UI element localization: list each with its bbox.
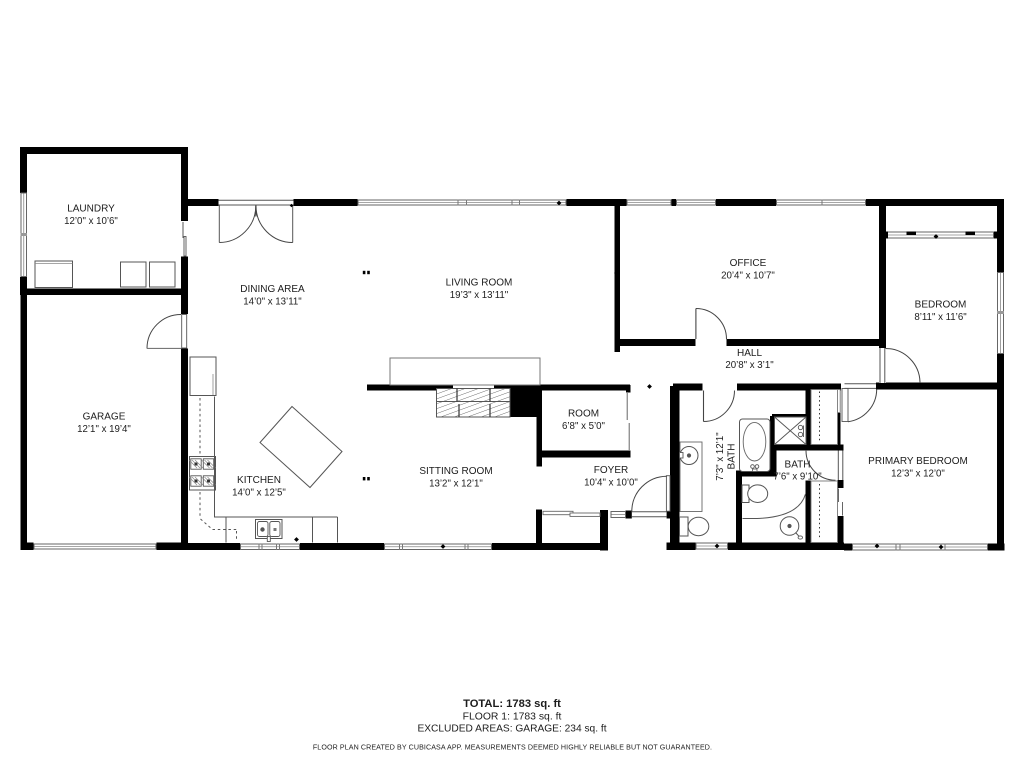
svg-text:7’6" x 9’10": 7’6" x 9’10"	[773, 472, 822, 483]
svg-text:GARAGE: GARAGE	[83, 412, 126, 423]
svg-text:14’0" x 13’11": 14’0" x 13’11"	[243, 297, 302, 308]
svg-text:8’11" x 11’6": 8’11" x 11’6"	[914, 312, 967, 323]
svg-text:OFFICE: OFFICE	[730, 258, 767, 269]
svg-text:BATH: BATH	[727, 444, 738, 470]
svg-text:KITCHEN: KITCHEN	[237, 475, 281, 486]
svg-text:13’2" x 12’1": 13’2" x 12’1"	[429, 479, 483, 490]
svg-text:LAUNDRY: LAUNDRY	[67, 204, 115, 215]
svg-text:20’8" x 3’1": 20’8" x 3’1"	[725, 360, 774, 371]
svg-text:12’0" x 10’6": 12’0" x 10’6"	[64, 216, 118, 227]
svg-text:LIVING ROOM: LIVING ROOM	[446, 278, 513, 289]
svg-text:10’4" x 10’0": 10’4" x 10’0"	[584, 478, 638, 489]
svg-text:FOYER: FOYER	[594, 465, 628, 476]
svg-text:12’1" x 19’4": 12’1" x 19’4"	[77, 424, 131, 435]
svg-text:FLOOR 1: 1783 sq. ft: FLOOR 1: 1783 sq. ft	[463, 712, 562, 723]
svg-text:14’0" x 12’5": 14’0" x 12’5"	[232, 488, 286, 499]
svg-text:TOTAL: 1783 sq. ft: TOTAL: 1783 sq. ft	[463, 698, 561, 710]
svg-text:BATH: BATH	[785, 460, 811, 471]
svg-text:7’3" x 12’1": 7’3" x 12’1"	[715, 432, 726, 481]
svg-text:12’3" x 12’0": 12’3" x 12’0"	[891, 469, 945, 480]
svg-text:20’4" x 10’7": 20’4" x 10’7"	[721, 271, 775, 282]
svg-text:6’8" x 5’0": 6’8" x 5’0"	[562, 421, 606, 432]
svg-text:EXCLUDED AREAS: GARAGE: 234 sq: EXCLUDED AREAS: GARAGE: 234 sq. ft	[417, 724, 606, 735]
svg-text:SITTING ROOM: SITTING ROOM	[419, 466, 492, 477]
svg-text:PRIMARY BEDROOM: PRIMARY BEDROOM	[868, 456, 968, 467]
svg-text:ROOM: ROOM	[568, 409, 599, 420]
svg-text:FLOOR PLAN CREATED BY CUBICASA: FLOOR PLAN CREATED BY CUBICASA APP. MEAS…	[313, 744, 712, 752]
svg-text:BEDROOM: BEDROOM	[915, 300, 967, 311]
svg-text:19’3" x 13’11": 19’3" x 13’11"	[450, 290, 509, 301]
svg-text:HALL: HALL	[737, 348, 762, 359]
svg-text:DINING AREA: DINING AREA	[240, 284, 305, 295]
